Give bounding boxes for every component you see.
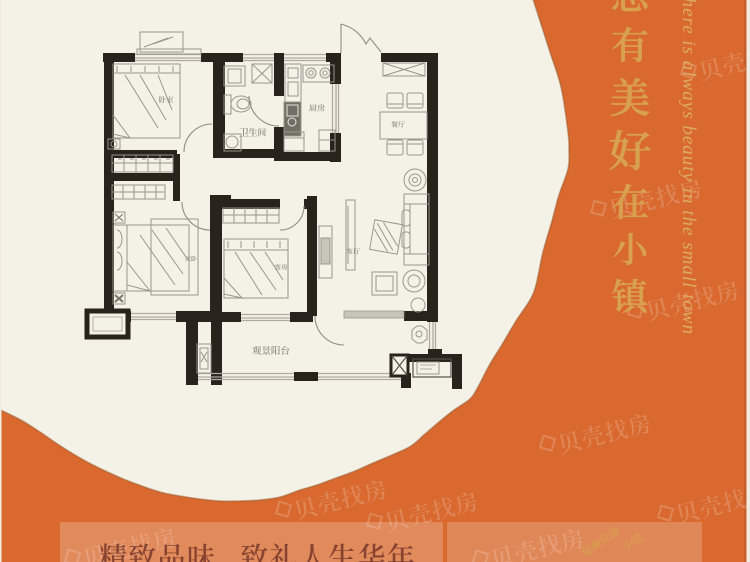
svg-text:There is always beauty in the: There is always beauty in the small town	[678, 0, 699, 335]
